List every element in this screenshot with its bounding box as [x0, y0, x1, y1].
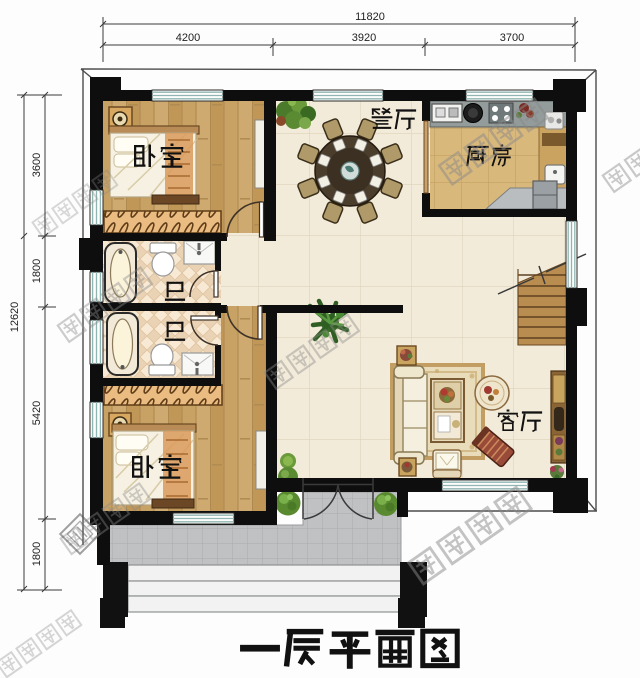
svg-text:11820: 11820 [355, 11, 385, 23]
svg-text:3600: 3600 [31, 153, 43, 177]
svg-text:1800: 1800 [31, 259, 43, 283]
svg-text:3920: 3920 [352, 32, 376, 44]
svg-text:1800: 1800 [31, 542, 43, 566]
svg-text:4200: 4200 [176, 32, 200, 44]
svg-text:3700: 3700 [500, 32, 524, 44]
svg-text:12620: 12620 [9, 302, 21, 333]
svg-text:5420: 5420 [31, 401, 43, 425]
